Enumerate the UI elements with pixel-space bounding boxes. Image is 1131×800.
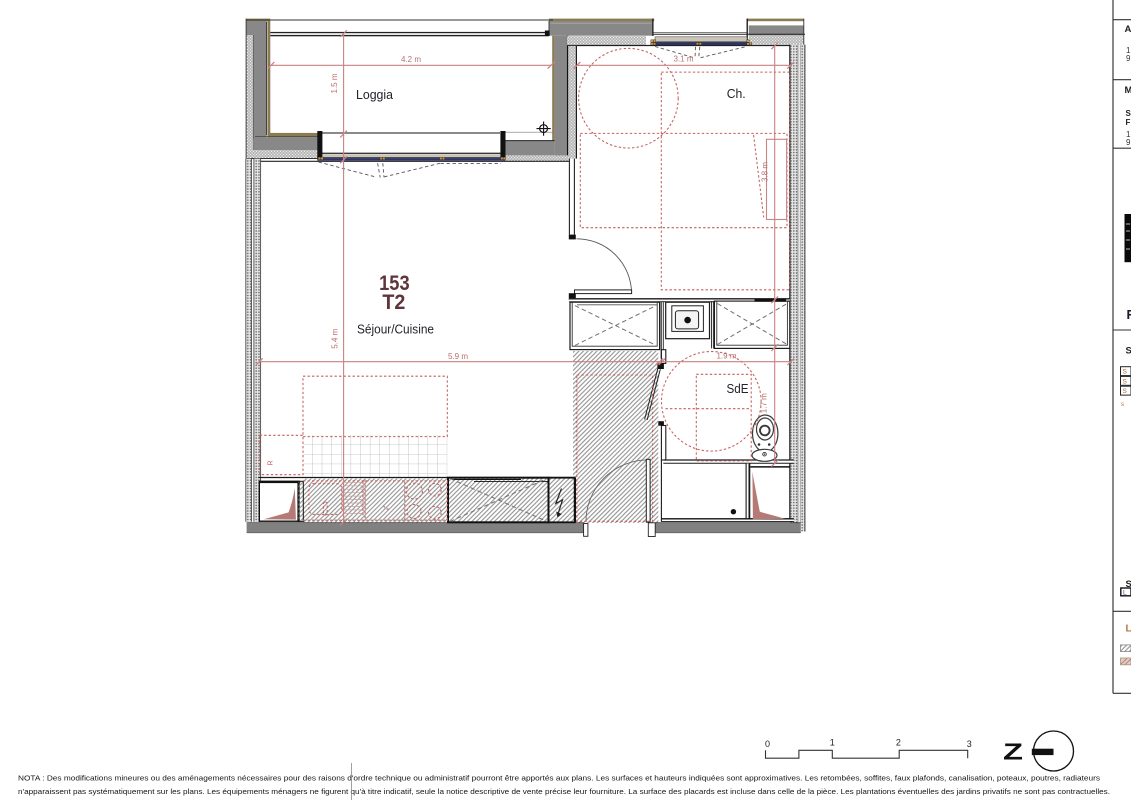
svg-text:3: 3 <box>967 739 972 749</box>
svg-text:1.9 m: 1.9 m <box>716 352 736 361</box>
svg-text:9: 9 <box>1126 54 1131 63</box>
svg-text:SdE: SdE <box>727 382 749 396</box>
svg-text:5.9 m: 5.9 m <box>448 352 468 361</box>
svg-text:Ch.: Ch. <box>727 87 746 101</box>
svg-text:5.4 m: 5.4 m <box>330 328 339 348</box>
svg-text:F: F <box>1126 118 1131 127</box>
svg-text:M: M <box>1125 85 1131 96</box>
svg-text:4.2 m: 4.2 m <box>401 55 421 64</box>
svg-text:2: 2 <box>896 738 901 748</box>
svg-text:Loggia: Loggia <box>356 88 393 102</box>
svg-text:3.1 m: 3.1 m <box>673 54 693 63</box>
svg-text:S: S <box>1126 109 1131 118</box>
svg-text:S: S <box>1123 388 1128 395</box>
svg-text:A: A <box>1125 24 1131 35</box>
svg-text:Z: Z <box>1003 738 1023 764</box>
svg-text:S: S <box>1123 378 1128 385</box>
svg-text:Séjour/Cuisine: Séjour/Cuisine <box>357 323 434 337</box>
svg-text:3.8 m: 3.8 m <box>760 162 769 182</box>
svg-text:L: L <box>1123 590 1127 597</box>
svg-text:T2: T2 <box>382 291 405 314</box>
svg-text:s: s <box>1121 402 1124 408</box>
svg-text:R: R <box>268 460 275 465</box>
svg-text:NOTA : Des modifications mineu: NOTA : Des modifications mineures ou des… <box>18 773 1100 782</box>
svg-text:1.7 m: 1.7 m <box>759 393 768 413</box>
svg-text:S: S <box>1123 369 1128 376</box>
svg-text:R: R <box>1127 307 1131 322</box>
svg-text:S: S <box>1126 346 1131 357</box>
svg-text:n'apparaissent pas systématiqu: n'apparaissent pas systématiquement sur … <box>18 787 1110 796</box>
svg-text:1.5 m: 1.5 m <box>330 73 339 93</box>
svg-text:1: 1 <box>830 738 835 748</box>
svg-text:9: 9 <box>1126 138 1131 147</box>
svg-text:0: 0 <box>765 739 770 749</box>
svg-text:L: L <box>1126 624 1131 635</box>
